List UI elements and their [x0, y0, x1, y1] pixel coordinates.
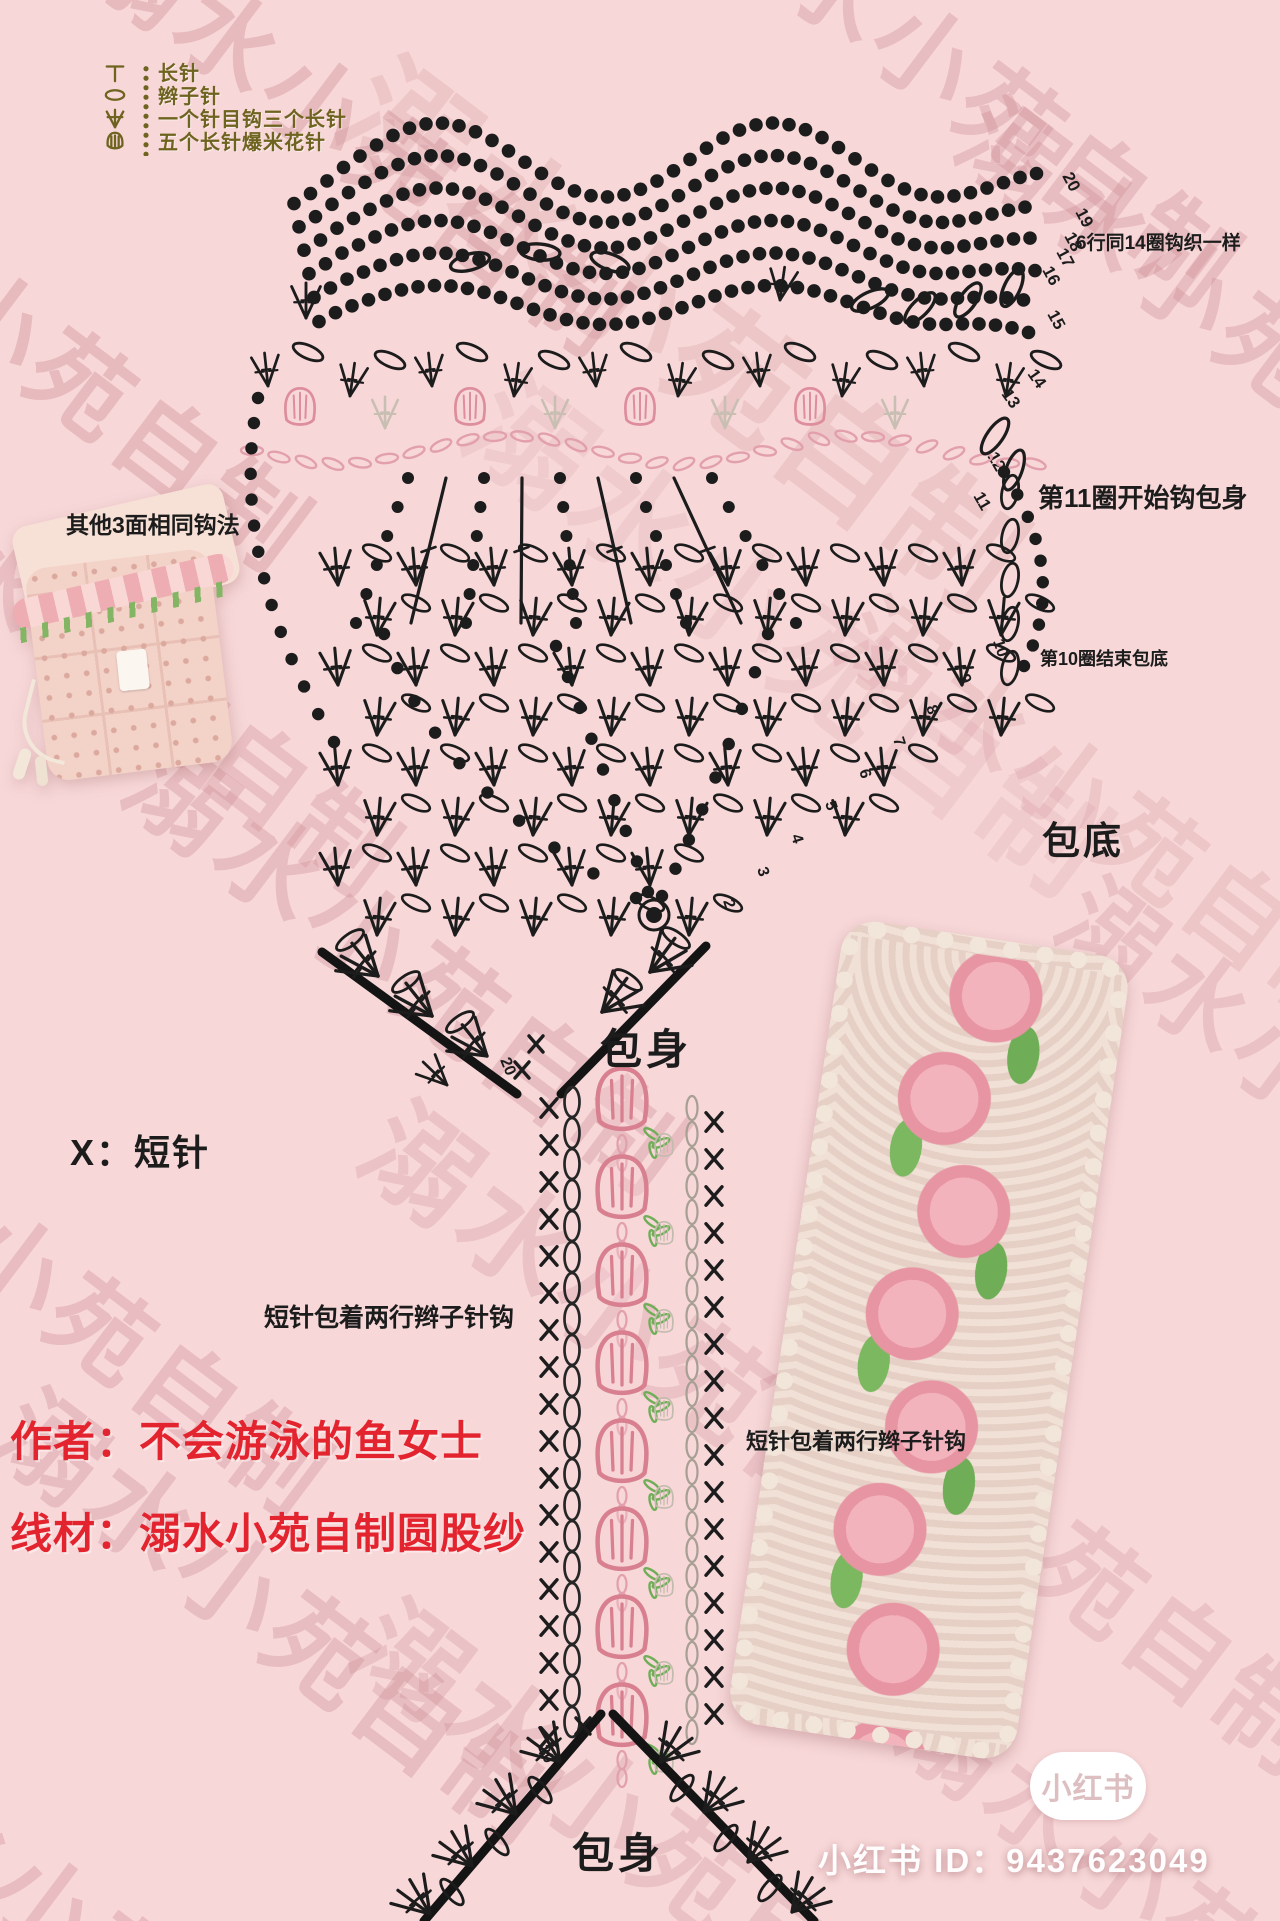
bag-bottom-label: 包底: [1042, 810, 1124, 865]
svg-text:11: 11: [970, 489, 995, 514]
shell-3dc-icon: [100, 107, 130, 129]
svg-text:3: 3: [753, 865, 772, 879]
xiaohongshu-logo-text: 小红书: [1042, 1764, 1135, 1808]
svg-text:4: 4: [787, 832, 806, 846]
svg-text:9: 9: [955, 672, 974, 686]
yarn-line: 线材：溺水小苑自制圆股纱: [10, 1500, 526, 1561]
popcorn-5dc-icon: [100, 130, 130, 152]
svg-text:6: 6: [855, 767, 874, 781]
other-sides-note: 其他3面相同钩法: [66, 506, 240, 540]
crochet-chart: 2019181716151413121110987654322020: [0, 0, 1280, 1921]
chain-stitch-icon: [100, 84, 130, 106]
svg-text:14: 14: [1024, 365, 1051, 392]
crochet-pattern-poster: 溺水小苑自制溺水小苑自制溺水小苑自制溺水小苑自制溺水小苑自制溺水小苑自制溺水小苑…: [0, 0, 1280, 1921]
svg-text:15: 15: [1043, 307, 1069, 333]
xiaohongshu-id: 小红书 ID：9437623049: [818, 1834, 1210, 1882]
round11-note: 第11圈开始钩包身: [1038, 478, 1248, 515]
legend-row: 五个长针爆米花针: [100, 129, 347, 152]
author-line: 作者：不会游泳的鱼女士: [10, 1408, 483, 1469]
double-crochet-icon: [100, 61, 130, 83]
xiaohongshu-logo-badge: 小红书: [1030, 1752, 1146, 1820]
legend-label: 五个长针爆米花针: [158, 126, 326, 155]
single-crochet-legend: X：短针: [70, 1124, 210, 1176]
svg-text:20: 20: [496, 1055, 518, 1078]
stitch-legend: 长针 辫子针 一个针目钩三个长针 五个长针爆米花针: [100, 60, 347, 152]
six-rows-note: 6行同14圈钩织一样: [1076, 228, 1241, 255]
round10-note: 第10圈结束包底: [1040, 645, 1168, 671]
legend-row: 长针: [100, 60, 347, 83]
legend-leader-dots: [142, 64, 150, 156]
svg-text:20: 20: [1058, 169, 1084, 195]
sc-wrap-note-right: 短针包着两行辫子针钩: [746, 1424, 966, 1456]
svg-text:19: 19: [1071, 205, 1097, 231]
sc-wrap-note-left: 短针包着两行辫子针钩: [264, 1298, 514, 1334]
bag-body-label-top: 包身: [600, 1016, 692, 1077]
bag-body-label-bottom: 包身: [572, 1820, 664, 1881]
svg-text:7: 7: [889, 735, 908, 749]
